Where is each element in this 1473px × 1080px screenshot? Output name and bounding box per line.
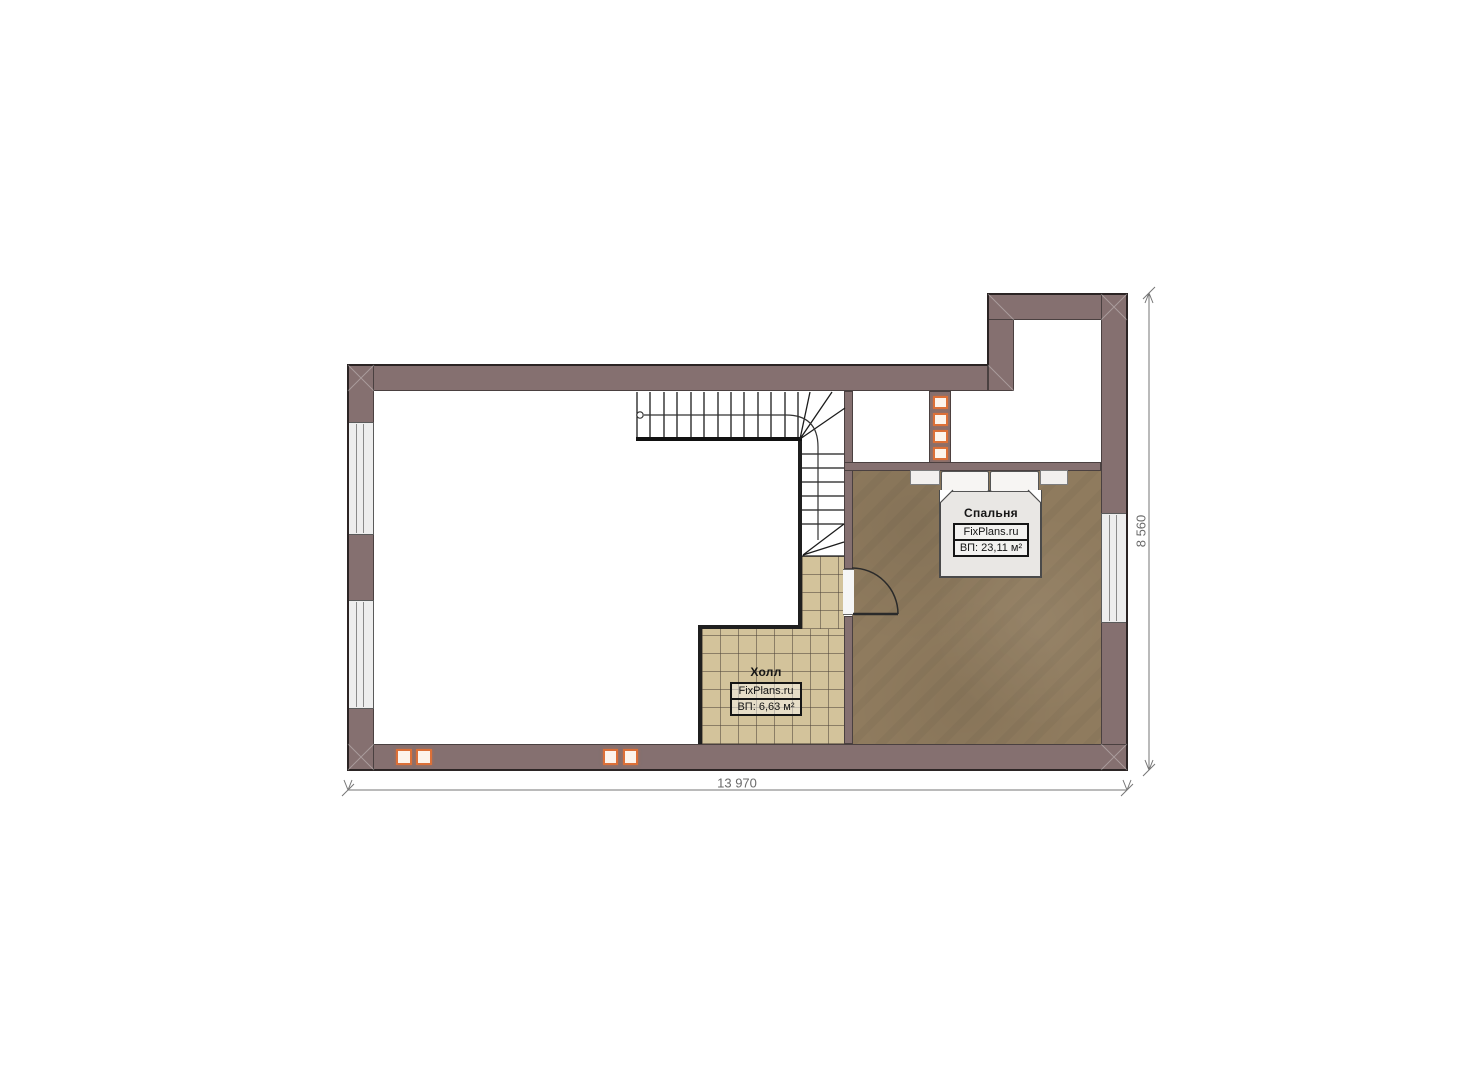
flue-vent-icon xyxy=(933,413,948,426)
window-right xyxy=(1101,513,1127,623)
hall-top-partition xyxy=(698,625,802,629)
pillow-left xyxy=(941,471,989,492)
bedroom-label: Спальня FixPlans.ru ВП: 23,11 м² xyxy=(941,506,1041,557)
bedroom-brand: FixPlans.ru xyxy=(955,525,1027,539)
hall-info-box: FixPlans.ru ВП: 6,63 м² xyxy=(730,682,801,716)
hall-left-partition xyxy=(698,625,702,744)
dimension-width-label: 13 970 xyxy=(717,776,757,791)
window-pane-icon xyxy=(356,602,364,707)
nightstand-left xyxy=(910,470,940,485)
skylight-icon xyxy=(416,749,432,765)
bedroom-name: Спальня xyxy=(964,506,1018,520)
hall-name: Холл xyxy=(750,665,781,679)
hall-floor-strip xyxy=(802,556,844,629)
bedroom-info-box: FixPlans.ru ВП: 23,11 м² xyxy=(953,523,1029,557)
dimension-height-label: 8 560 xyxy=(1134,515,1149,548)
window-left-upper xyxy=(348,422,374,535)
skylight-icon xyxy=(623,749,638,765)
pillow-right xyxy=(990,471,1039,492)
skylight-icon xyxy=(396,749,412,765)
wall-top xyxy=(348,365,988,391)
window-left-lower xyxy=(348,600,374,709)
window-pane-icon xyxy=(1109,515,1117,621)
door-threshold xyxy=(843,569,854,615)
hall-area: ВП: 6,63 м² xyxy=(732,698,799,714)
nightstand-right xyxy=(1040,470,1068,485)
bedroom-area: ВП: 23,11 м² xyxy=(955,539,1027,555)
window-pane-icon xyxy=(356,424,364,533)
bedroom-divider-wall-upper xyxy=(844,391,853,569)
bedroom-divider-wall-lower xyxy=(844,616,853,744)
hall-label: Холл FixPlans.ru ВП: 6,63 м² xyxy=(716,665,816,716)
hall-brand: FixPlans.ru xyxy=(732,684,799,698)
skylight-icon xyxy=(603,749,618,765)
flue-vent-icon xyxy=(933,447,948,460)
floor-plan: Спальня FixPlans.ru ВП: 23,11 м² Холл Fi… xyxy=(0,0,1473,1080)
flue-vent-icon xyxy=(933,396,948,409)
bumpout-room xyxy=(1014,320,1101,462)
wall-bottom xyxy=(348,744,1127,770)
flue-vent-icon xyxy=(933,430,948,443)
stair-hall-partition xyxy=(798,438,802,629)
